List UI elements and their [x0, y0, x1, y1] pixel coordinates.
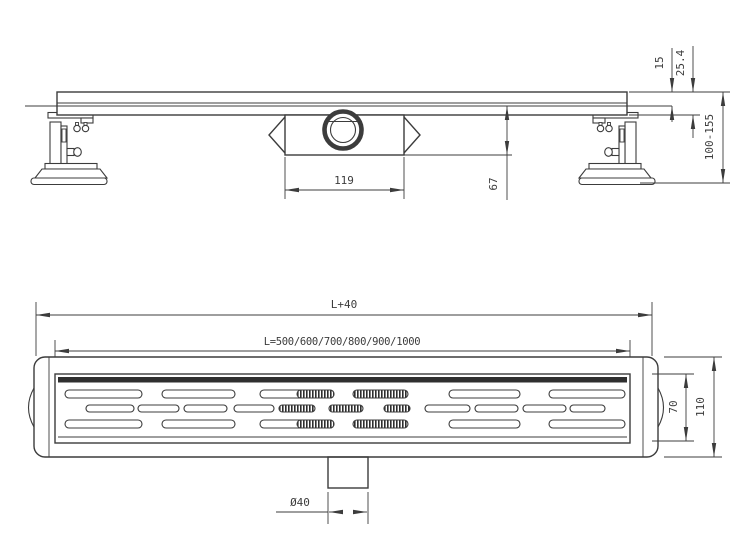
technical-drawing-shower-drain: 119 67 15 25.4 100- — [0, 0, 738, 555]
side-view: 119 67 15 25.4 100- — [25, 46, 730, 200]
grate-slot — [65, 420, 142, 428]
grate-slot — [138, 405, 179, 412]
grate-slot — [449, 390, 520, 398]
grate-slot — [184, 405, 227, 412]
drawing-svg: 119 67 15 25.4 100- — [0, 0, 738, 555]
grate-slot — [425, 405, 470, 412]
dim-trap-depth: 67 — [404, 106, 512, 200]
end-cap-arc-right — [658, 388, 664, 427]
grate-slot — [353, 420, 408, 428]
grate-slot-hatch-overlay — [297, 390, 334, 398]
grate-slot — [329, 405, 363, 412]
dim-label-adjustable-height: 100-155 — [703, 114, 716, 160]
dim-label-body-width: 110 — [694, 397, 707, 417]
plan-view: L+40 L=500/600/700/800/900/1000 70 — [29, 298, 723, 524]
grate-slot — [549, 420, 625, 428]
grate-slot — [65, 390, 142, 398]
dim-label-outlet-diameter: Ø40 — [290, 496, 310, 509]
siphon-trap — [269, 112, 420, 156]
grate-slot — [384, 405, 410, 412]
channel-body-plan — [29, 357, 664, 457]
grate-slot — [279, 405, 315, 412]
dim-trap-width: 119 — [285, 157, 404, 199]
grate-slot — [86, 405, 134, 412]
dim-label-trap-width: 119 — [334, 174, 354, 187]
grate-slot — [162, 390, 235, 398]
grate-slot — [570, 405, 605, 412]
grate-slot — [449, 420, 520, 428]
dim-label-overall-length: L+40 — [331, 298, 358, 311]
dim-label-grate-thickness: 15 — [653, 56, 666, 69]
end-cap-arc-left — [29, 388, 35, 427]
leveling-foot-left — [31, 113, 107, 185]
dim-adjustable-height: 100-155 — [703, 92, 723, 183]
outlet-stub — [328, 457, 368, 488]
dim-label-grate-width: 70 — [667, 400, 680, 413]
grate-slot — [523, 405, 566, 412]
grate-slot-hatch-overlay — [297, 420, 334, 428]
grate-slot — [353, 390, 408, 398]
trap-wing-left — [269, 117, 285, 153]
dim-outlet-diameter: Ø40 — [276, 492, 368, 524]
trap-wing-right — [404, 117, 420, 153]
dim-label-channel-lengths: L=500/600/700/800/900/1000 — [264, 336, 421, 348]
grate-shadow-band — [58, 377, 627, 383]
grate-slot — [162, 420, 235, 428]
dim-label-channel-height: 25.4 — [674, 49, 687, 76]
dim-label-trap-depth: 67 — [487, 177, 500, 190]
dim-grate-thickness: 15 — [653, 48, 672, 122]
grate-slot — [549, 390, 625, 398]
grate-slot — [475, 405, 518, 412]
leveling-foot-right — [579, 113, 655, 185]
grate-slot — [234, 405, 274, 412]
